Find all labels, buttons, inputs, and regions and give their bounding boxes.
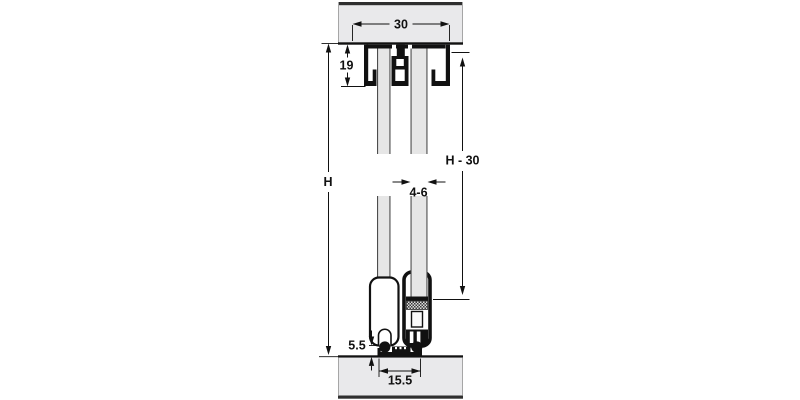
arrowhead-left: [428, 179, 437, 184]
label-glass-thickness: 4-6: [409, 186, 427, 200]
guide-channel-end-left: [378, 348, 381, 357]
label-overall-height: H: [323, 175, 332, 189]
guide-notch-2: [400, 347, 402, 349]
ceiling-mounting-line: [338, 42, 463, 44]
arrowhead-down: [460, 286, 465, 295]
track-flange-right: [412, 45, 446, 49]
technical-drawing-page: 30 19 H H - 30 4-6: [0, 0, 800, 400]
label-floor-guide-width: 15.5: [388, 374, 412, 388]
track-left-return: [364, 81, 377, 86]
glass-right-upper-edge-l: [411, 49, 412, 155]
glass-left-upper-edge-r: [389, 49, 390, 155]
base-slot-left: [410, 332, 414, 344]
ceiling-top-edge: [338, 2, 463, 5]
base-slot-right: [417, 332, 421, 344]
guide-notch-1: [395, 347, 397, 349]
track-flange-left: [367, 45, 393, 49]
arrowhead-down: [326, 346, 331, 355]
glass-left-upper: [377, 49, 391, 155]
clamp-knurled-block: [407, 301, 428, 310]
track-center-return: [392, 81, 409, 86]
ceiling-left-edge: [338, 2, 339, 43]
adjustment-tab: [412, 312, 423, 328]
glass-right-upper: [411, 49, 428, 155]
arrowhead-up: [460, 58, 465, 67]
glass-panel-left: [377, 49, 391, 278]
arrowhead-down: [345, 78, 350, 87]
ceiling-right-edge: [462, 2, 463, 43]
glass-panel-right: [411, 49, 428, 297]
track-left-lip: [373, 70, 377, 82]
track-right-return: [432, 81, 451, 86]
guide-channel-base: [378, 352, 423, 357]
top-track-profile: [364, 45, 450, 86]
dimension-glass-thickness: 4-6: [393, 179, 446, 199]
label-track-width: 30: [394, 18, 408, 32]
clamp-bar: [406, 297, 428, 302]
glass-right-upper-edge-r: [426, 49, 427, 155]
glass-left-upper-edge-l: [377, 49, 378, 155]
track-center-stem: [397, 45, 405, 57]
sliding-door-cross-section-diagram: 30 19 H H - 30 4-6: [0, 0, 800, 400]
glass-left-lower-edge-l: [377, 196, 378, 278]
label-door-height: H - 30: [445, 154, 479, 168]
bottom-guide-housing: [370, 278, 399, 353]
arrowhead-up: [345, 45, 350, 54]
label-floor-clearance: 5.5: [348, 339, 365, 353]
arrowhead-up: [326, 44, 331, 53]
arrowhead-right: [402, 179, 411, 184]
glass-left-lower-edge-r: [389, 196, 390, 278]
track-center-cavity: [396, 59, 404, 66]
glass-right-lower-edge-l: [411, 196, 412, 297]
floor-right-edge: [462, 358, 463, 396]
glass-right-lower: [411, 196, 428, 297]
guide-notch-3: [404, 347, 406, 349]
dimension-door-height: H - 30: [433, 53, 480, 300]
glass-left-lower: [377, 196, 391, 278]
guide-channel-end-right: [419, 348, 422, 357]
dimension-track-height: 19: [340, 45, 366, 87]
track-center-lip-left: [392, 70, 396, 82]
track-right-lip: [432, 70, 436, 82]
label-track-height: 19: [340, 59, 354, 73]
track-left-wall: [364, 45, 368, 86]
track-right-wall: [446, 45, 450, 86]
floor-left-edge: [338, 358, 339, 396]
floor-bottom-edge: [338, 396, 463, 399]
guide-roller-left: [379, 341, 390, 352]
glass-right-lower-edge-r: [426, 196, 427, 297]
track-center-lip-right: [405, 70, 409, 82]
dimension-overall-height: H: [319, 43, 340, 356]
